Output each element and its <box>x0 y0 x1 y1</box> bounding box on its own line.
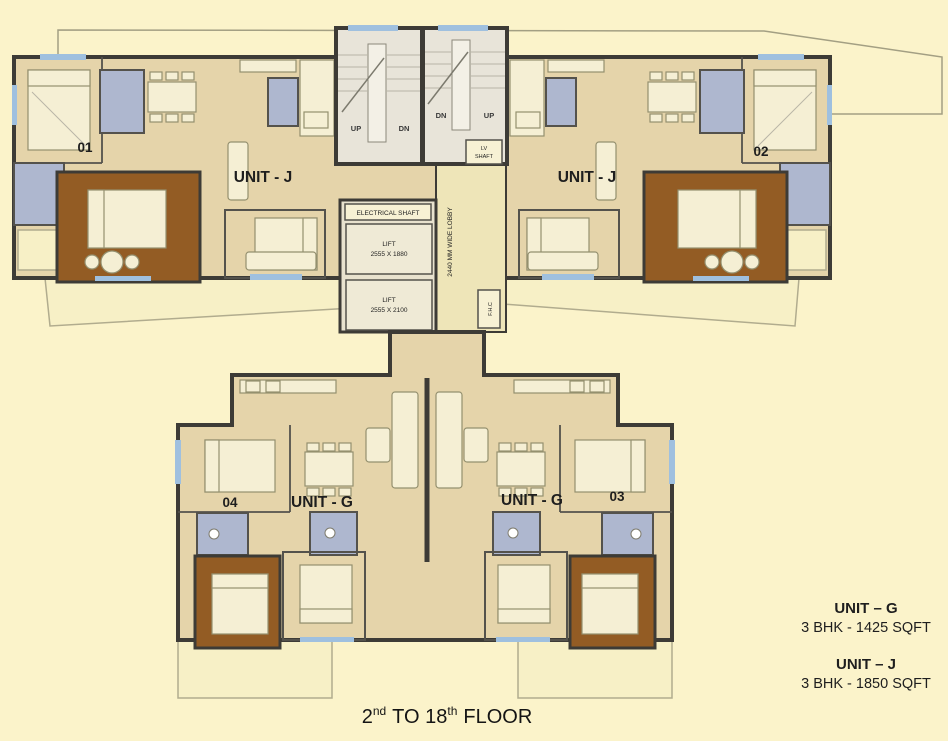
table <box>101 251 123 273</box>
dining-set <box>305 443 353 496</box>
bed-pillow <box>498 609 550 623</box>
floor-plan-drawing: UP DN DN UP ELECTRICAL SHAFT LIFT 2555 X… <box>0 0 948 741</box>
stair-up-label: UP <box>351 124 361 133</box>
window <box>348 25 398 31</box>
bed-pillow <box>88 190 104 248</box>
unit-label-j-left: UNIT - J <box>234 169 293 186</box>
toilet <box>325 528 335 538</box>
lift-1 <box>346 224 432 274</box>
sink <box>266 381 280 392</box>
table <box>721 251 743 273</box>
unit-number-01: 01 <box>77 140 93 155</box>
sofa <box>392 392 418 488</box>
armchair <box>464 428 488 462</box>
lv-shaft-label-line2: SHAFT <box>475 154 494 160</box>
stove <box>516 112 540 128</box>
bedroom <box>205 440 275 492</box>
chair <box>705 255 719 269</box>
bathroom <box>268 78 298 126</box>
stair-dn-label: DN <box>436 111 447 120</box>
lv-shaft-label-line1: LV <box>481 146 488 152</box>
chair <box>307 443 319 451</box>
central-core: UP DN DN UP ELECTRICAL SHAFT LIFT 2555 X… <box>336 25 507 382</box>
window <box>438 25 488 31</box>
floor-note-sup: th <box>447 704 457 718</box>
bed-pillow <box>300 609 352 623</box>
lift-block: ELECTRICAL SHAFT LIFT 2555 X 1880 LIFT 2… <box>340 200 436 332</box>
armchair <box>366 428 390 462</box>
master-bedroom-03 <box>570 556 655 648</box>
floor-note-mid: TO 18 <box>392 706 447 728</box>
chair <box>125 255 139 269</box>
dining-table <box>648 82 696 112</box>
fire-hose-cabinet: F.H.C <box>478 290 500 328</box>
master-bedroom-01 <box>57 172 200 282</box>
bedroom <box>575 440 645 492</box>
unit-number-02: 02 <box>753 144 768 159</box>
dining-set <box>648 72 696 122</box>
unit-label-g-left: UNIT - G <box>291 494 353 511</box>
sink <box>246 381 260 392</box>
kitchen-counter <box>240 60 296 72</box>
bedroom <box>754 70 816 150</box>
floor-note-number: 2 <box>362 706 373 728</box>
chair <box>150 72 162 80</box>
bed-pillow <box>28 70 90 86</box>
legend-unit-j-spec: 3 BHK - 1850 SQFT <box>801 676 931 692</box>
lift-1-size: 2555 X 1880 <box>371 251 408 258</box>
balcony <box>786 230 826 270</box>
lift-2-size: 2555 X 2100 <box>371 307 408 314</box>
bottom-wing <box>175 332 675 648</box>
lift-2-label: LIFT <box>382 297 395 304</box>
bathroom <box>100 70 144 133</box>
sofa <box>528 252 598 270</box>
bathroom <box>602 513 653 555</box>
master-bedroom-04 <box>195 556 280 648</box>
sofa <box>246 252 316 270</box>
toilet <box>631 529 641 539</box>
bed-pillow <box>205 440 219 492</box>
chair <box>515 443 527 451</box>
bed-pillow <box>212 574 268 588</box>
chair <box>666 114 678 122</box>
toilet <box>209 529 219 539</box>
staircase-left: UP DN <box>336 28 422 164</box>
legend-unit-g-title: UNIT – G <box>834 600 897 617</box>
chair <box>166 114 178 122</box>
chair <box>85 255 99 269</box>
dining-set <box>148 72 196 122</box>
bed-pillow <box>582 574 638 588</box>
chair <box>323 443 335 451</box>
kitchen-counter <box>548 60 604 72</box>
bathroom <box>700 70 744 133</box>
bed-pillow <box>631 440 645 492</box>
toilet <box>508 528 518 538</box>
chair <box>182 72 194 80</box>
chair <box>182 114 194 122</box>
sink <box>590 381 604 392</box>
chair <box>682 72 694 80</box>
chair <box>666 72 678 80</box>
stove <box>304 112 328 128</box>
legend-unit-j-title: UNIT – J <box>836 656 896 673</box>
lift-1-label: LIFT <box>382 241 395 248</box>
sink <box>570 381 584 392</box>
dining-table <box>305 452 353 486</box>
chair <box>166 72 178 80</box>
stair-dn-label: DN <box>399 124 410 133</box>
chair <box>531 443 543 451</box>
dining-table <box>148 82 196 112</box>
lobby-label: 2440 MM WIDE LOBBY <box>447 207 454 277</box>
electrical-shaft-label: ELECTRICAL SHAFT <box>357 210 420 217</box>
floor-note-tail: FLOOR <box>463 706 532 728</box>
unit-number-04: 04 <box>222 495 238 510</box>
dining-table <box>497 452 545 486</box>
bathroom <box>546 78 576 126</box>
kitchen <box>240 380 336 393</box>
lift-2 <box>346 280 432 330</box>
floor-plan-page: UP DN DN UP ELECTRICAL SHAFT LIFT 2555 X… <box>0 0 948 741</box>
chair <box>499 443 511 451</box>
bedroom <box>28 70 90 150</box>
sofa <box>436 392 462 488</box>
floor-note-sup: nd <box>373 704 386 718</box>
legend-unit-g-spec: 3 BHK - 1425 SQFT <box>801 620 931 636</box>
bed-pillow <box>754 70 816 86</box>
chair <box>745 255 759 269</box>
chair <box>339 443 351 451</box>
unit-label-j-right: UNIT - J <box>558 169 617 186</box>
chair <box>682 114 694 122</box>
chair <box>650 72 662 80</box>
unit-label-g-right: UNIT - G <box>501 492 563 509</box>
master-bedroom-02 <box>644 172 787 282</box>
balcony <box>18 230 58 270</box>
fhc-label: F.H.C <box>488 302 494 316</box>
kitchen <box>514 380 610 393</box>
unit-number-03: 03 <box>609 489 625 504</box>
lv-shaft: LV SHAFT <box>466 140 502 164</box>
chair <box>150 114 162 122</box>
chair <box>650 114 662 122</box>
bathroom <box>197 513 248 555</box>
stair-up-label: UP <box>484 111 494 120</box>
dining-set <box>497 443 545 496</box>
bed-pillow <box>740 190 756 248</box>
